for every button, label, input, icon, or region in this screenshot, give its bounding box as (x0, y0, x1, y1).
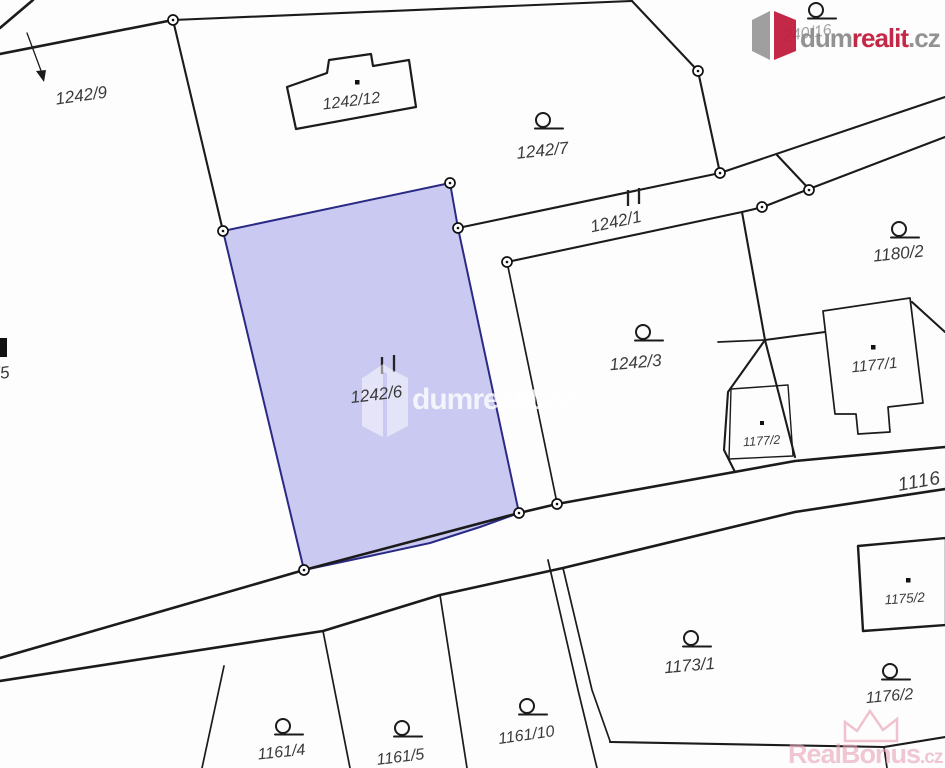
vertex-circle (218, 226, 228, 236)
realbonus-text-main: RealBonus (788, 739, 920, 768)
vertex-circle (299, 565, 309, 575)
dumrealit-logo-text: dumrealit.cz (800, 23, 941, 53)
vertex-circle (445, 178, 455, 188)
building-dot (355, 80, 360, 85)
center-watermark-text: dumrealit.cz (412, 383, 575, 416)
logo-text-cz: .cz (908, 23, 941, 53)
vertex-circle (453, 223, 463, 233)
realbonus-text: RealBonus.cz (788, 739, 943, 768)
realbonus-text-cz: .cz (920, 747, 943, 768)
building-dot (871, 345, 876, 350)
vertex-circle (514, 508, 524, 518)
vertex-circle (693, 66, 703, 76)
vertex-circle (715, 168, 725, 178)
dumrealit-house-icon (752, 11, 796, 60)
cadastral-map[interactable]: dumrealit.cz 1242/9 1242/12 1242/7 1242/… (0, 0, 945, 768)
logo-text-dum: dum (800, 23, 852, 53)
edge-mark (0, 338, 7, 357)
building-dot (906, 578, 911, 583)
logo-text-realit: realit (852, 23, 909, 53)
vertex-circle (757, 202, 767, 212)
vertex-circle (804, 185, 814, 195)
vertex-circle (552, 499, 562, 509)
parcel-label-1175-2: 1175/2 (884, 590, 926, 608)
vertex-circle (168, 15, 178, 25)
building-dot (760, 421, 764, 425)
vertex-circle (502, 257, 512, 267)
parcel-label-1177-2: 1177/2 (743, 433, 781, 450)
